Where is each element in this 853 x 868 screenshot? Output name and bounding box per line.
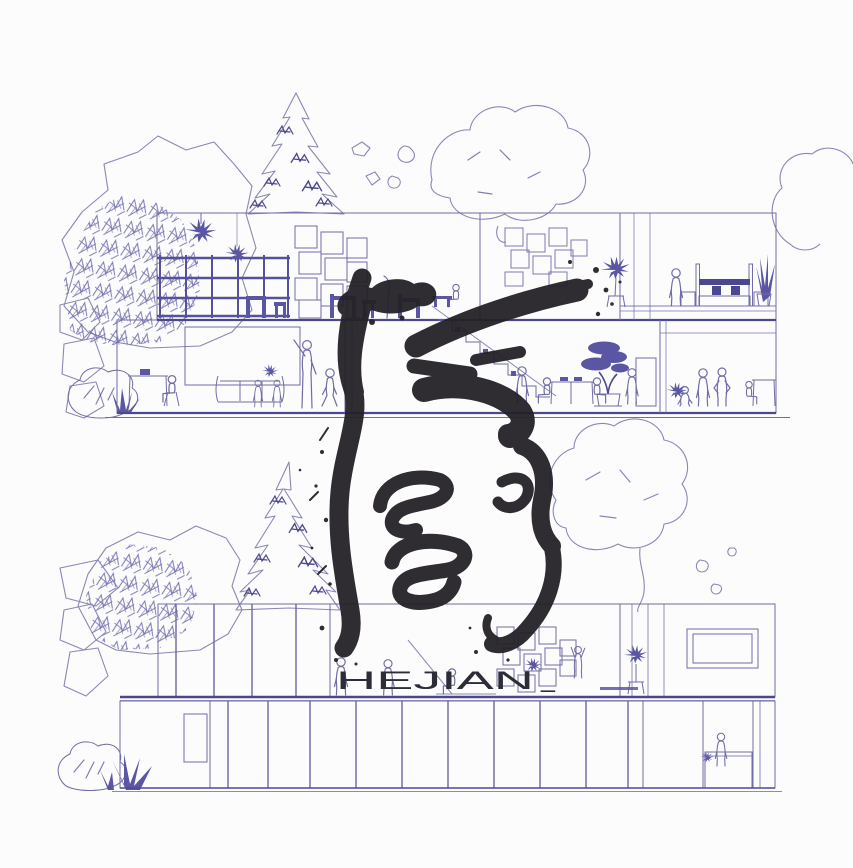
illustration: HEJIAN _ <box>0 0 853 868</box>
wordmark-text: HEJIAN <box>336 667 534 695</box>
wordmark-underscore: _ <box>540 665 556 693</box>
wordmark: HEJIAN _ <box>336 665 556 695</box>
poster-canvas: HEJIAN _ <box>0 0 853 868</box>
